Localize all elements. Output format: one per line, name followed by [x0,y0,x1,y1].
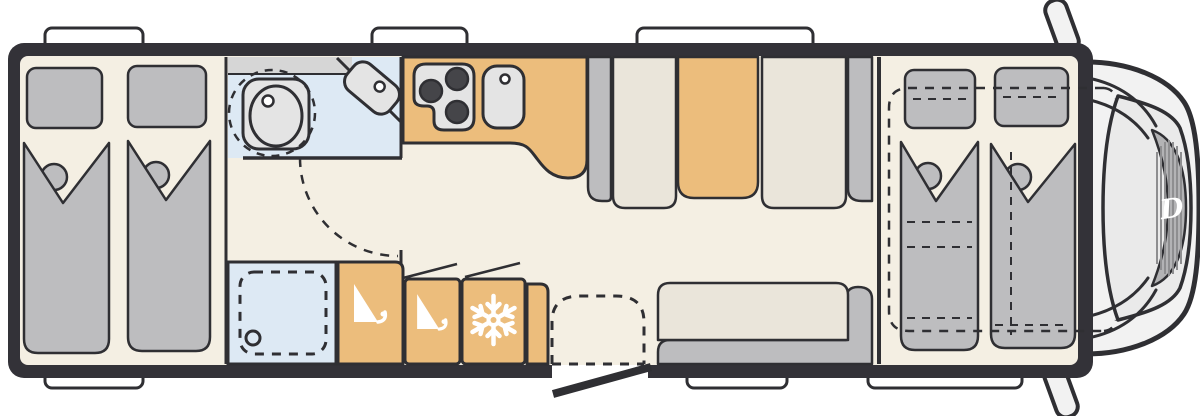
bench-backrest-left [588,57,611,201]
fridge [462,279,525,364]
brand-logo: D [1157,192,1186,226]
wardrobe-1 [338,262,403,364]
floorplan-svg: D [0,0,1200,416]
wardrobe-2 [405,279,460,364]
pillow [27,68,102,128]
duvet [24,143,109,353]
cabinet-panel [527,284,548,364]
motorhome-floorplan: D [0,0,1200,416]
duvet [128,141,210,351]
wet-room-shelf [228,57,352,74]
duvet [901,142,978,350]
pillow [995,68,1068,126]
bench-seat-left [613,57,676,208]
dinette-table [678,57,758,198]
dinette [588,57,872,208]
bench-backrest-right [848,57,872,201]
bench-seat-right [762,57,846,208]
doorway-floor [552,357,648,365]
wet-room [228,57,404,158]
kitchen-sink-icon [483,66,524,128]
shower [228,262,336,364]
sofa-seat [658,283,848,340]
pillow [128,66,206,127]
cab-front: D [1086,62,1199,354]
sofa [658,283,872,364]
pillow [905,70,975,128]
